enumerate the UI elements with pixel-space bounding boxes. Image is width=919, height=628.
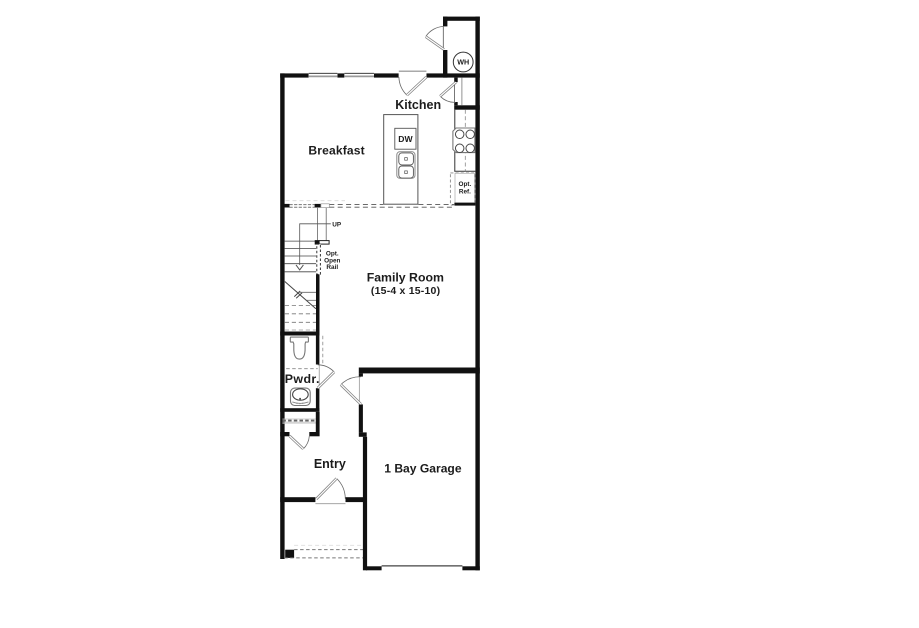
svg-text:1 Bay Garage: 1 Bay Garage <box>384 461 462 475</box>
svg-text:(15-4 x 15-10): (15-4 x 15-10) <box>371 285 440 297</box>
svg-text:Ref.: Ref. <box>459 189 471 196</box>
svg-text:Rail: Rail <box>326 264 338 271</box>
svg-text:UP: UP <box>332 222 342 229</box>
svg-text:Kitchen: Kitchen <box>395 98 441 112</box>
svg-text:Opt.: Opt. <box>459 181 472 188</box>
svg-text:WH: WH <box>457 58 469 67</box>
svg-text:Entry: Entry <box>314 457 346 471</box>
svg-text:Pwdr.: Pwdr. <box>285 372 320 386</box>
svg-text:Family Room: Family Room <box>367 270 444 284</box>
svg-text:DW: DW <box>398 134 413 144</box>
svg-text:Breakfast: Breakfast <box>308 143 364 157</box>
